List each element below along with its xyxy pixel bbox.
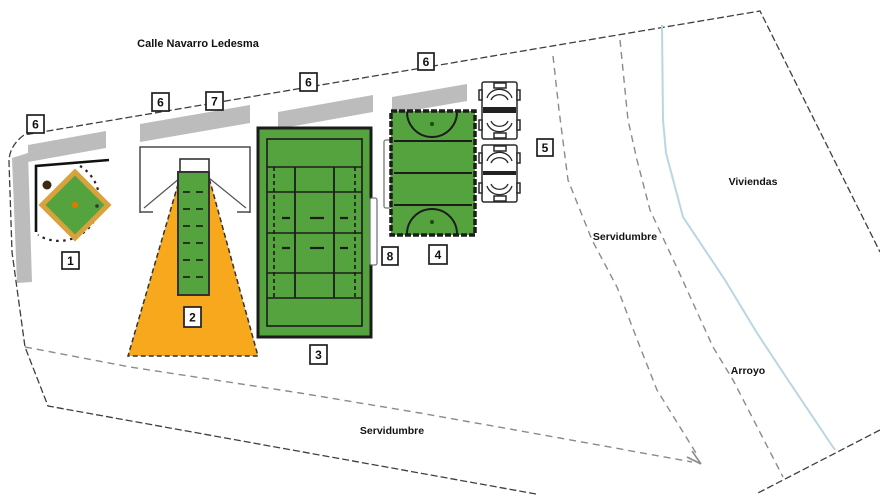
tennis-court — [258, 128, 371, 337]
marker-4: 4 — [429, 245, 447, 264]
multisport-dot-top — [430, 122, 434, 126]
svg-text:6: 6 — [32, 118, 39, 132]
climbing-column — [178, 172, 209, 295]
mound-dot — [72, 202, 78, 208]
sidewalk-strip-corner-top — [28, 131, 106, 162]
easement-line-right-1 — [553, 56, 696, 453]
svg-text:2: 2 — [189, 311, 196, 325]
svg-text:5: 5 — [542, 141, 549, 155]
small-dot — [95, 204, 99, 208]
svg-text:3: 3 — [315, 348, 322, 362]
multisport-court — [391, 111, 475, 235]
viviendas-label: Viviendas — [729, 176, 778, 188]
marker-1: 1 — [62, 252, 79, 269]
wall-panel-2 — [370, 198, 377, 265]
marker-6-left: 6 — [27, 115, 44, 133]
diamond-field — [36, 160, 109, 241]
sidewalk-strip-corner-left — [12, 153, 32, 283]
servidumbre-bottom-label: Servidumbre — [360, 425, 424, 437]
easement-line-right-2 — [620, 40, 783, 477]
arroyo-label: Arroyo — [731, 365, 765, 377]
svg-text:6: 6 — [157, 96, 164, 110]
marker-6-top-c: 6 — [418, 53, 434, 70]
mini-basket-table-2 — [479, 145, 520, 202]
stream-line — [662, 25, 835, 450]
marker-5: 5 — [537, 139, 553, 156]
marker-2: 2 — [184, 307, 201, 327]
marker-7: 7 — [206, 92, 223, 110]
svg-text:6: 6 — [423, 55, 430, 69]
svg-text:1: 1 — [67, 254, 74, 268]
site-plan: 6 6 7 6 6 5 8 4 1 2 3 Calle Navarro Lede… — [0, 0, 880, 495]
svg-text:6: 6 — [305, 76, 312, 90]
multisport-dot-bottom — [430, 220, 434, 224]
servidumbre-right-label: Servidumbre — [593, 231, 657, 243]
sidewalk-strip-3 — [278, 95, 373, 129]
svg-text:4: 4 — [435, 248, 442, 262]
marker-6-top-a: 6 — [152, 93, 169, 111]
marker-8: 8 — [382, 247, 398, 265]
site-plan-page: 6 6 7 6 6 5 8 4 1 2 3 Calle Navarro Lede… — [0, 0, 880, 495]
marker-3: 3 — [310, 345, 327, 364]
svg-text:7: 7 — [211, 95, 218, 109]
home-plate-dot — [43, 181, 52, 190]
street-label: Calle Navarro Ledesma — [137, 38, 260, 50]
marker-6-top-b: 6 — [300, 73, 317, 91]
mini-basket-table-1 — [479, 82, 520, 139]
svg-text:8: 8 — [387, 250, 394, 264]
easement-arrow-line — [25, 347, 692, 462]
